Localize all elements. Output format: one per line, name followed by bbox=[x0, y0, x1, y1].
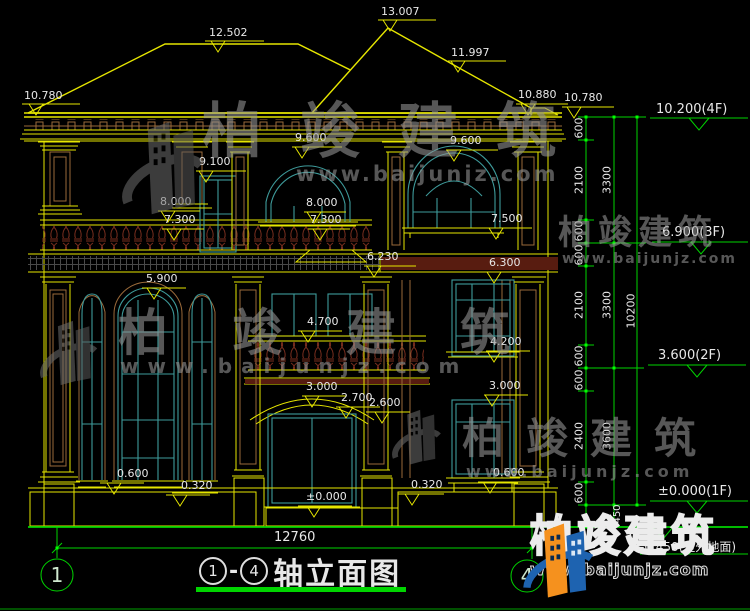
watermark-text: www.baijunjz.com bbox=[120, 356, 468, 376]
dim-label: ±0.000 bbox=[306, 491, 347, 502]
dim-label: 2100 bbox=[574, 291, 585, 319]
dim-label: 8.000 bbox=[306, 197, 338, 208]
watermark-text: 柏竣建筑 bbox=[202, 102, 594, 162]
watermark-text: www.baijunjz.com bbox=[296, 164, 559, 185]
dim-label: 5.900 bbox=[146, 273, 178, 284]
title-underline bbox=[196, 587, 406, 592]
watermark-text: www.baijunjz.com bbox=[466, 464, 693, 480]
dim-label: 0.320 bbox=[411, 479, 443, 490]
dim-label: 0.600 bbox=[117, 468, 149, 479]
dim-label: 13.007 bbox=[381, 6, 420, 17]
axis-circle-end: 4 bbox=[240, 557, 268, 585]
brand-logo: 柏竣建筑 www.baijunjz.com bbox=[522, 516, 718, 578]
dim-label: 6.300 bbox=[489, 257, 521, 268]
dim-label: 600 bbox=[574, 370, 585, 391]
dim-label: 7.500 bbox=[491, 213, 523, 224]
axis-circle-start: 1 bbox=[199, 557, 227, 585]
dim-label: 2.700 bbox=[341, 392, 373, 403]
dim-label: 3300 bbox=[602, 291, 613, 319]
cad-elevation-drawing: 13.00712.50211.99710.88010.78010.78010.2… bbox=[0, 0, 750, 611]
dim-label: 10.200(4F) bbox=[656, 103, 727, 116]
dim-label: 12.502 bbox=[209, 27, 248, 38]
dim-label: 7.300 bbox=[310, 214, 342, 225]
dim-label: ±0.000(1F) bbox=[658, 485, 732, 498]
dim-label: 0.320 bbox=[181, 480, 213, 491]
dim-label: 3.000 bbox=[489, 380, 521, 391]
dim-label: 12760 bbox=[274, 531, 315, 544]
watermark-text: 柏竣建筑 bbox=[462, 418, 718, 460]
axis-bubble-number: 1 bbox=[51, 565, 64, 585]
dim-label: 2100 bbox=[574, 166, 585, 194]
dim-label: 6.230 bbox=[367, 251, 399, 262]
watermark-text: 柏竣建筑 bbox=[118, 308, 574, 358]
dim-label: 3300 bbox=[602, 166, 613, 194]
watermark-text: www.baijunjz.com bbox=[562, 252, 737, 266]
title-dash: - bbox=[229, 559, 238, 584]
dim-label: 600 bbox=[574, 483, 585, 504]
dim-label: 3.600(2F) bbox=[658, 349, 721, 362]
dim-label: 3.000 bbox=[306, 381, 338, 392]
dim-label: 10200 bbox=[626, 294, 637, 329]
dim-label: 10.780 bbox=[24, 90, 63, 101]
dim-label: 11.997 bbox=[451, 47, 490, 58]
watermark-text: 柏竣建筑 bbox=[558, 216, 718, 250]
dim-label: 600 bbox=[574, 346, 585, 367]
brand-logo-icon bbox=[522, 516, 596, 610]
